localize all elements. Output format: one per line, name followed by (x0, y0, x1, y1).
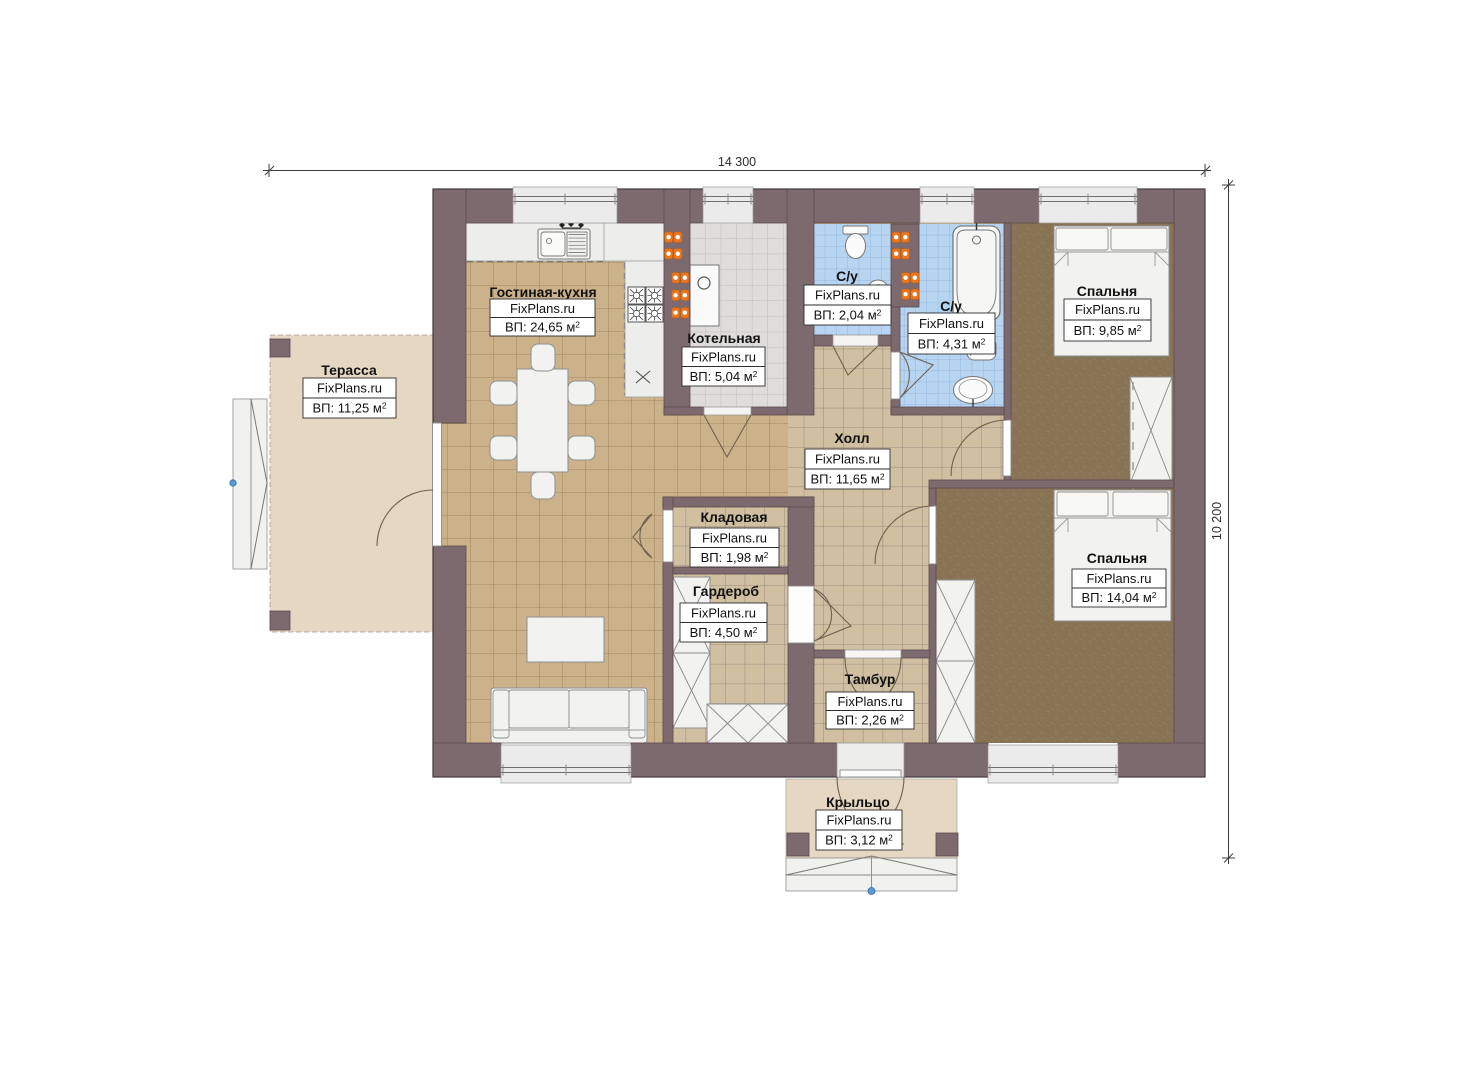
svg-text:FixPlans.ru: FixPlans.ru (815, 452, 880, 467)
svg-text:С/у: С/у (940, 298, 962, 314)
svg-text:ВП: 11,65 м2: ВП: 11,65 м2 (810, 472, 884, 487)
svg-text:Спальня: Спальня (1087, 550, 1147, 566)
svg-text:Крыльцо: Крыльцо (826, 794, 890, 810)
svg-text:FixPlans.ru: FixPlans.ru (919, 316, 984, 331)
svg-text:FixPlans.ru: FixPlans.ru (510, 301, 575, 316)
svg-text:14 300: 14 300 (718, 155, 756, 169)
svg-text:FixPlans.ru: FixPlans.ru (837, 694, 902, 709)
svg-text:ВП: 2,26 м2: ВП: 2,26 м2 (836, 712, 904, 727)
svg-text:ВП: 14,04 м2: ВП: 14,04 м2 (1081, 590, 1156, 605)
svg-text:ВП: 24,65 м2: ВП: 24,65 м2 (505, 319, 580, 334)
svg-text:Тамбур: Тамбур (845, 671, 896, 687)
svg-text:ВП: 1,98 м2: ВП: 1,98 м2 (701, 550, 769, 565)
svg-text:ВП: 11,25 м2: ВП: 11,25 м2 (312, 401, 386, 416)
svg-text:ВП: 9,85 м2: ВП: 9,85 м2 (1074, 323, 1142, 338)
svg-text:FixPlans.ru: FixPlans.ru (317, 381, 382, 396)
svg-text:Котельная: Котельная (687, 330, 760, 346)
svg-text:С/у: С/у (836, 268, 858, 284)
svg-text:FixPlans.ru: FixPlans.ru (815, 288, 880, 303)
svg-text:10 200: 10 200 (1210, 502, 1224, 540)
svg-text:ВП: 3,12 м2: ВП: 3,12 м2 (825, 833, 893, 848)
svg-text:Спальня: Спальня (1077, 283, 1137, 299)
svg-text:FixPlans.ru: FixPlans.ru (826, 813, 891, 828)
svg-text:Гардероб: Гардероб (693, 583, 760, 599)
svg-text:FixPlans.ru: FixPlans.ru (691, 605, 756, 620)
svg-text:FixPlans.ru: FixPlans.ru (702, 530, 767, 545)
svg-text:ВП: 4,31 м2: ВП: 4,31 м2 (918, 336, 986, 351)
svg-text:ВП: 5,04 м2: ВП: 5,04 м2 (690, 369, 758, 384)
svg-text:FixPlans.ru: FixPlans.ru (1086, 571, 1151, 586)
svg-text:Кладовая: Кладовая (700, 509, 767, 525)
svg-text:Гостиная-кухня: Гостиная-кухня (489, 284, 596, 300)
svg-text:Холл: Холл (834, 430, 869, 446)
svg-text:ВП: 4,50 м2: ВП: 4,50 м2 (690, 625, 758, 640)
svg-text:FixPlans.ru: FixPlans.ru (1075, 302, 1140, 317)
svg-text:Терасса: Терасса (321, 362, 377, 378)
svg-text:FixPlans.ru: FixPlans.ru (691, 349, 756, 364)
svg-text:ВП: 2,04 м2: ВП: 2,04 м2 (814, 308, 882, 323)
